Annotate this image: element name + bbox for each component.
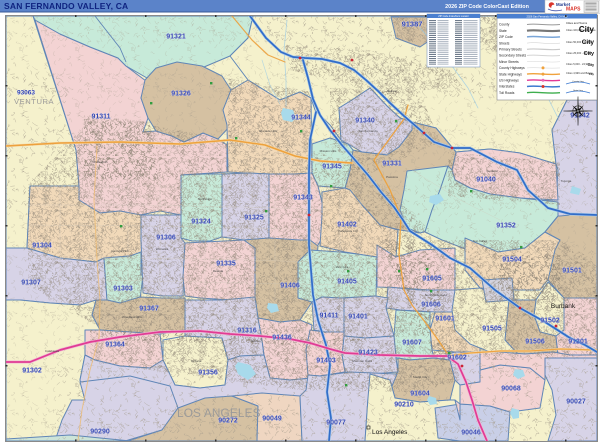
svg-text:State: State [499,29,507,33]
svg-text:Primary Streets: Primary Streets [499,48,522,52]
svg-text:MAPS: MAPS [566,7,581,13]
svg-text:City: City [579,25,595,34]
svg-text:Minor Streets: Minor Streets [499,60,519,64]
svg-text:City: City [588,63,595,67]
svg-text:County: County [499,23,510,27]
svg-text:City: City [584,51,595,57]
svg-text:County Highways: County Highways [499,66,525,70]
svg-text:Secondary Streets: Secondary Streets [499,54,526,58]
svg-text:Toll Roads: Toll Roads [499,91,515,95]
svg-text:State Line: State Line [573,89,584,92]
svg-text:City: City [589,72,595,76]
svg-text:SAN FERNANDO VALLEY, CA: SAN FERNANDO VALLEY, CA [4,1,128,11]
svg-text:Streets: Streets [499,41,510,45]
svg-text:Interstates: Interstates [499,85,515,89]
svg-text:2026 San Fernando Valley, CA M: 2026 San Fernando Valley, CA Map [527,15,569,19]
svg-text:State Highways: State Highways [499,72,522,76]
svg-text:US Highways: US Highways [499,79,519,83]
svg-text:2026 ZIP Code ColorCast Editio: 2026 ZIP Code ColorCast Edition [445,4,529,10]
svg-text:County Line: County Line [572,80,584,83]
svg-text:City: City [582,39,595,46]
svg-text:ZIP Code Index/Item Locator: ZIP Code Index/Item Locator [438,15,469,18]
svg-text:ZIP Code: ZIP Code [499,35,513,39]
